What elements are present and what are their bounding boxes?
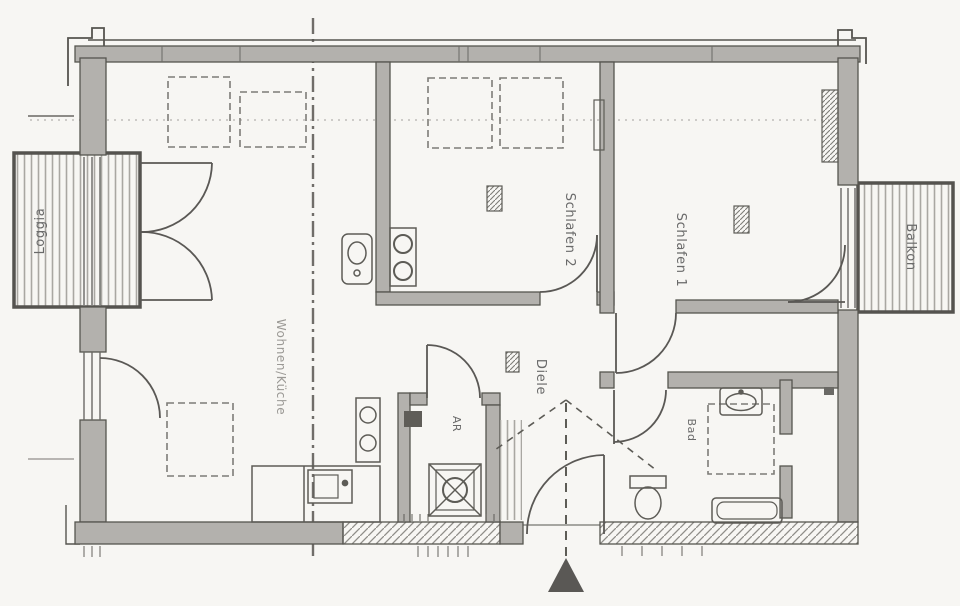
room-label-diele: Diele <box>533 359 548 395</box>
symbol-diele-icon <box>506 352 519 372</box>
shaft-box-icon <box>404 411 422 427</box>
wall-bad-top <box>668 372 838 388</box>
room-label-balkon: Balkon <box>903 223 918 270</box>
wall-right-lower <box>838 310 858 522</box>
wall-ar-top-right <box>482 393 500 405</box>
wall-right-upper <box>838 58 858 185</box>
room-label-bad: Bad <box>685 418 698 441</box>
symbol-schlafen1-icon <box>734 206 749 233</box>
wall-ar-right <box>486 405 500 522</box>
room-label-wohnen: Wohnen/Küche <box>274 319 288 415</box>
valve-mark-icon <box>824 387 834 395</box>
wall-schlafen2-bottom <box>376 292 540 305</box>
wall-wohnen-schlafen2 <box>376 62 390 292</box>
room-label-loggia: Loggia <box>33 208 48 255</box>
wall-bottom-center <box>343 522 500 544</box>
floorplan-scan: Loggia Balkon <box>0 0 960 606</box>
entry-jamb-left <box>500 522 523 544</box>
room-label-ar: AR <box>450 416 463 432</box>
wall-left-upper <box>80 58 106 155</box>
symbol-schlafen2-icon <box>487 186 502 211</box>
wall-stub-bad-upper <box>780 380 792 434</box>
wall-left-middle <box>80 307 106 352</box>
wall-bottom-left <box>75 522 343 544</box>
room-label-schlafen2: Schlafen 2 <box>562 193 577 267</box>
wall-bottom-right <box>600 522 858 544</box>
floorplan-svg: Loggia Balkon <box>0 0 960 606</box>
radiator-schlafen1-icon <box>822 90 838 162</box>
wall-left-lower <box>80 420 106 522</box>
room-balkon: Balkon <box>858 183 953 312</box>
room-loggia: Loggia <box>14 153 140 307</box>
wall-post-bad-door <box>600 372 614 388</box>
wall-ar-top-left <box>410 393 427 405</box>
room-label-schlafen1: Schlafen 1 <box>673 213 688 287</box>
wall-hatch-ar-right <box>500 420 522 520</box>
